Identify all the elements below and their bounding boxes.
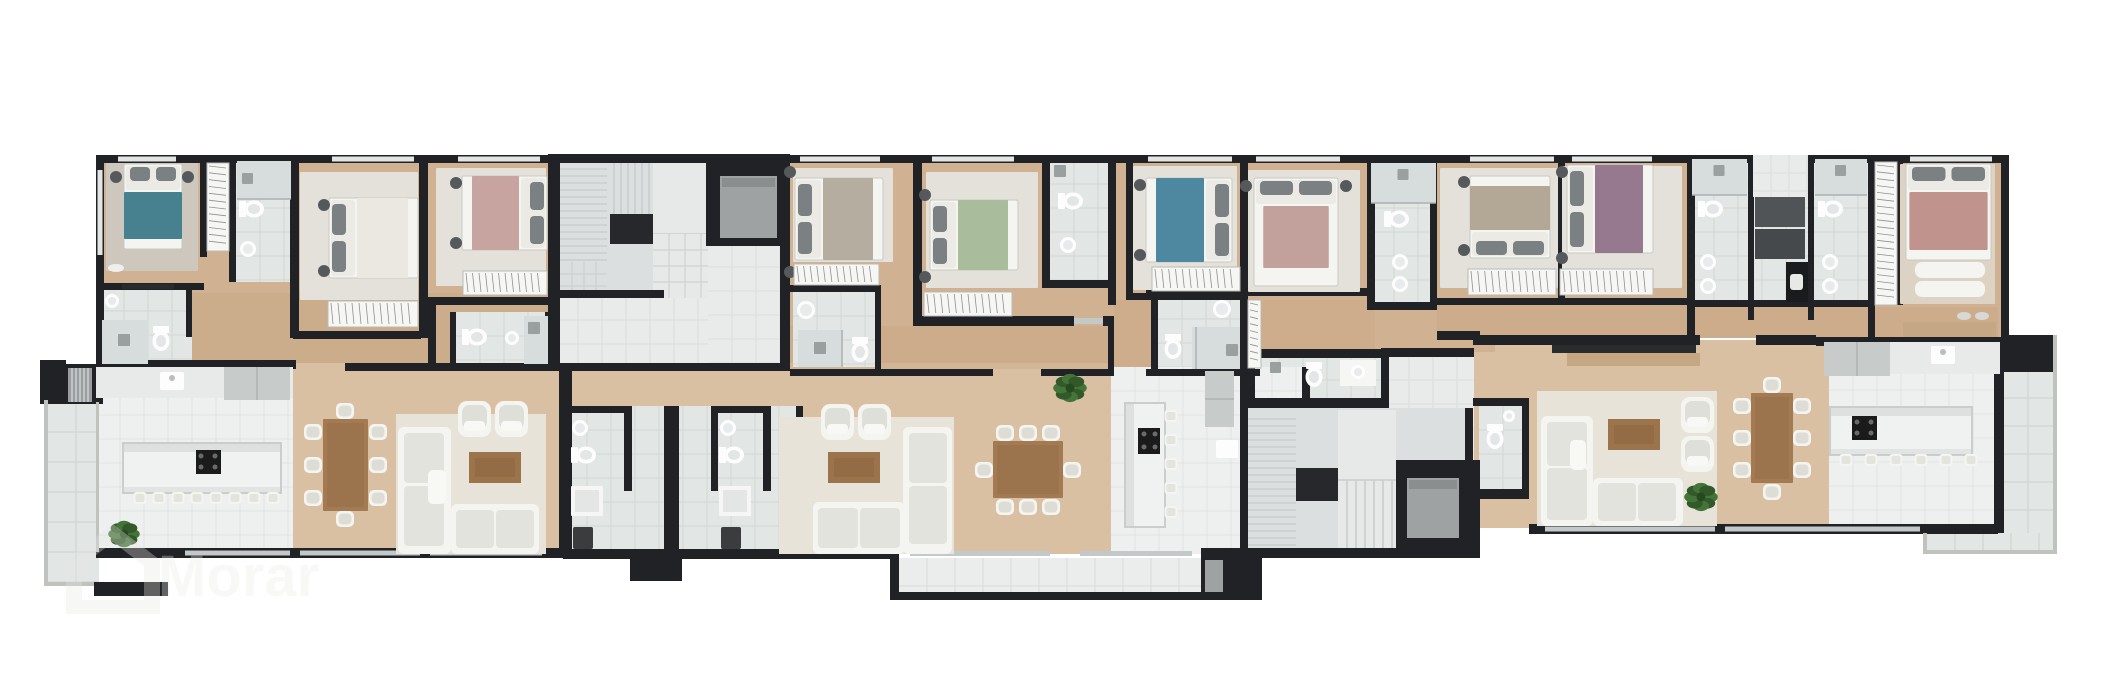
svg-text:Morar: Morar: [158, 544, 319, 609]
